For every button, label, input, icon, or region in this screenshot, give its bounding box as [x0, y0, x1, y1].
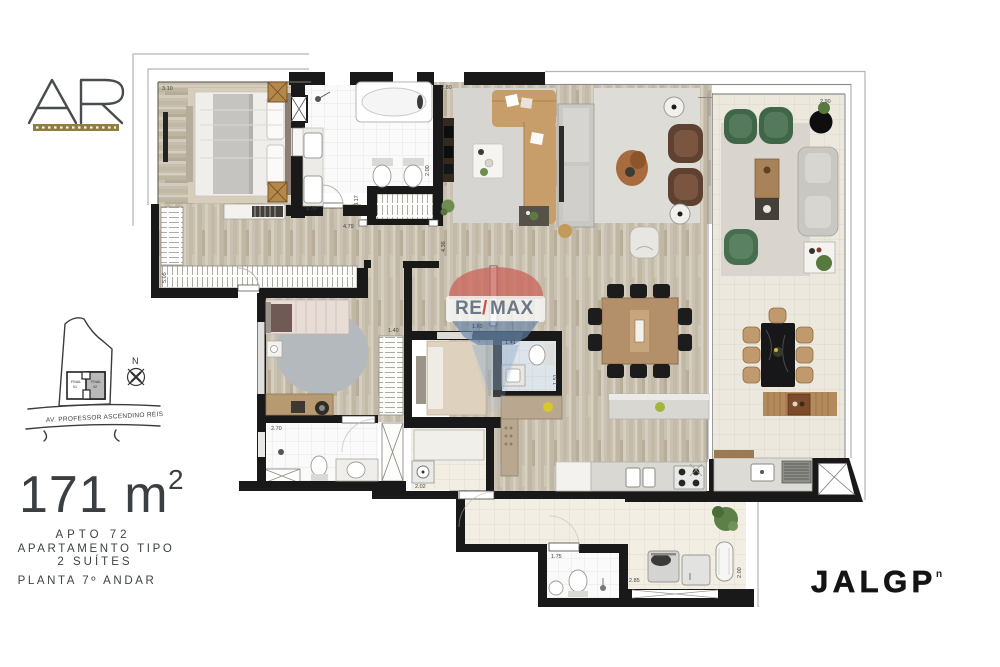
svg-text:3.10: 3.10	[162, 86, 173, 92]
svg-text:FINAL: FINAL	[91, 380, 101, 384]
svg-text:1.51: 1.51	[553, 374, 559, 385]
svg-text:2.85: 2.85	[629, 578, 640, 584]
svg-text:FINAL: FINAL	[71, 380, 81, 384]
svg-text:APARTAMENTO TIPO: APARTAMENTO TIPO	[18, 543, 175, 555]
svg-text:3.17: 3.17	[354, 195, 360, 206]
svg-text:5.05: 5.05	[162, 272, 168, 283]
svg-text:JALGP: JALGP	[811, 564, 937, 599]
svg-text:N: N	[132, 356, 139, 366]
svg-text:1.60: 1.60	[472, 324, 483, 330]
svg-text:2.70: 2.70	[271, 426, 282, 432]
svg-text:2.90: 2.90	[820, 99, 831, 105]
svg-text:2.00: 2.00	[737, 567, 743, 578]
svg-text:/: /	[482, 298, 488, 319]
svg-text:1.40: 1.40	[388, 328, 399, 334]
svg-text:PLANTA 7º ANDAR: PLANTA 7º ANDAR	[18, 575, 157, 587]
svg-text:02: 02	[93, 385, 97, 389]
svg-text:2.80: 2.80	[441, 85, 452, 91]
svg-text:2.02: 2.02	[415, 484, 426, 490]
svg-text:2 SUÍTES: 2 SUÍTES	[57, 555, 132, 568]
svg-text:01: 01	[73, 385, 77, 389]
svg-text:RE: RE	[455, 298, 482, 319]
svg-text:n: n	[936, 569, 942, 580]
svg-text:APTO 72: APTO 72	[55, 529, 130, 541]
svg-text:1.75: 1.75	[551, 554, 562, 560]
svg-text:1.70: 1.70	[306, 206, 317, 212]
svg-text:171 m: 171 m	[19, 466, 169, 524]
svg-text:4.79: 4.79	[343, 224, 354, 230]
svg-text:MAX: MAX	[490, 298, 534, 319]
svg-text:4.36: 4.36	[441, 241, 447, 252]
svg-text:2: 2	[168, 464, 184, 495]
svg-text:1.41: 1.41	[505, 340, 516, 346]
svg-text:2.00: 2.00	[425, 165, 431, 176]
